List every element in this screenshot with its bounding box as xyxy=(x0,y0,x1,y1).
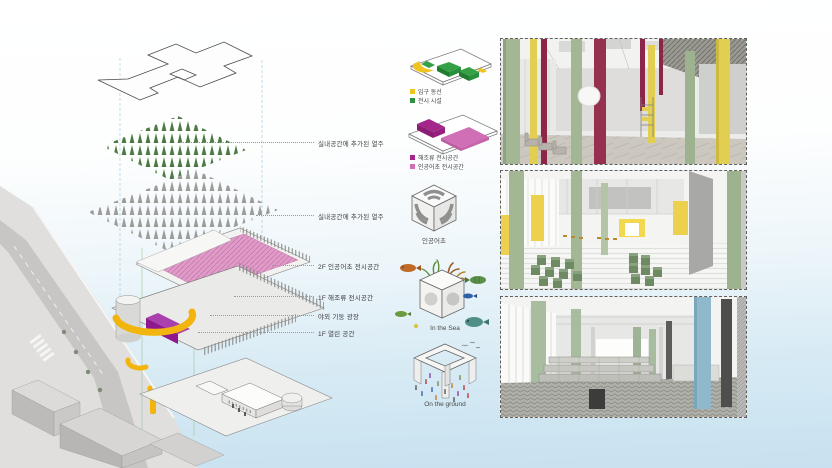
dark-column xyxy=(721,299,732,407)
textured-wall xyxy=(737,297,746,417)
gray-wall xyxy=(689,171,713,275)
legend-swatch xyxy=(410,155,415,160)
legend-exhibit-facility: 전시 시설 xyxy=(410,96,442,105)
fish-blue xyxy=(463,294,477,299)
render-middle-hall xyxy=(500,170,747,290)
pendant-sphere-lamp xyxy=(578,86,600,106)
legend-label: 전시 시설 xyxy=(418,96,442,105)
circulation-diagram xyxy=(403,40,498,86)
sea-cube-caption: In the Sea xyxy=(390,325,500,332)
presentation-board: 실내공간에 추가된 열주 실내공간에 추가된 열주 2F 인공어초 전시공간 1… xyxy=(0,0,832,468)
sea-cube-icon xyxy=(390,256,500,334)
axon-label-text: 1F 해조류 전시공간 xyxy=(318,292,373,302)
legend-label: 인공어초 전시공간 xyxy=(418,162,464,171)
fish-green xyxy=(465,276,486,284)
fish-orange xyxy=(400,264,421,272)
legend-swatch xyxy=(410,164,415,169)
legend-swatch xyxy=(410,89,415,94)
fish-small-green xyxy=(395,311,411,317)
render-bottom-benches xyxy=(500,296,747,418)
1f-plate xyxy=(112,262,324,356)
legend-label: 해조류 전시공간 xyxy=(418,153,458,162)
exhibition-zones-diagram xyxy=(403,110,503,155)
exploded-axon-drawing xyxy=(0,0,400,468)
axon-label-text: 1F 열린 공간 xyxy=(318,328,355,338)
roof-plan-outline xyxy=(98,42,252,100)
legend-reef: 인공어초 전시공간 xyxy=(410,162,464,171)
axon-label-text: 2F 인공어초 전시공간 xyxy=(318,261,379,271)
leader-line xyxy=(272,265,314,266)
ground-cube-icon xyxy=(402,340,488,406)
legend-seaweed: 해조류 전시공간 xyxy=(410,153,458,162)
leader-line xyxy=(256,215,314,216)
leader-line xyxy=(180,142,314,143)
legend-label: 입구 동선 xyxy=(418,87,442,96)
leader-line xyxy=(210,315,314,316)
reef-cube-icon xyxy=(406,182,462,234)
axon-label-text: 실내공간에 추가된 열주 xyxy=(318,211,384,221)
green-colonnade-layer xyxy=(102,116,246,180)
legend-entry-flow: 입구 동선 xyxy=(410,87,442,96)
reef-cube-caption: 인공어초 xyxy=(406,235,462,245)
bird-marks xyxy=(462,342,480,348)
leader-line xyxy=(198,332,314,333)
leader-line xyxy=(234,296,314,297)
render-top-columns xyxy=(500,38,747,165)
ground-cube-caption: On the ground xyxy=(402,401,488,408)
axon-label-text: 야외 기둥 광장 xyxy=(318,311,359,321)
dark-column xyxy=(666,321,672,383)
legend-swatch xyxy=(410,98,415,103)
axon-label-text: 실내공간에 추가된 열주 xyxy=(318,138,384,148)
